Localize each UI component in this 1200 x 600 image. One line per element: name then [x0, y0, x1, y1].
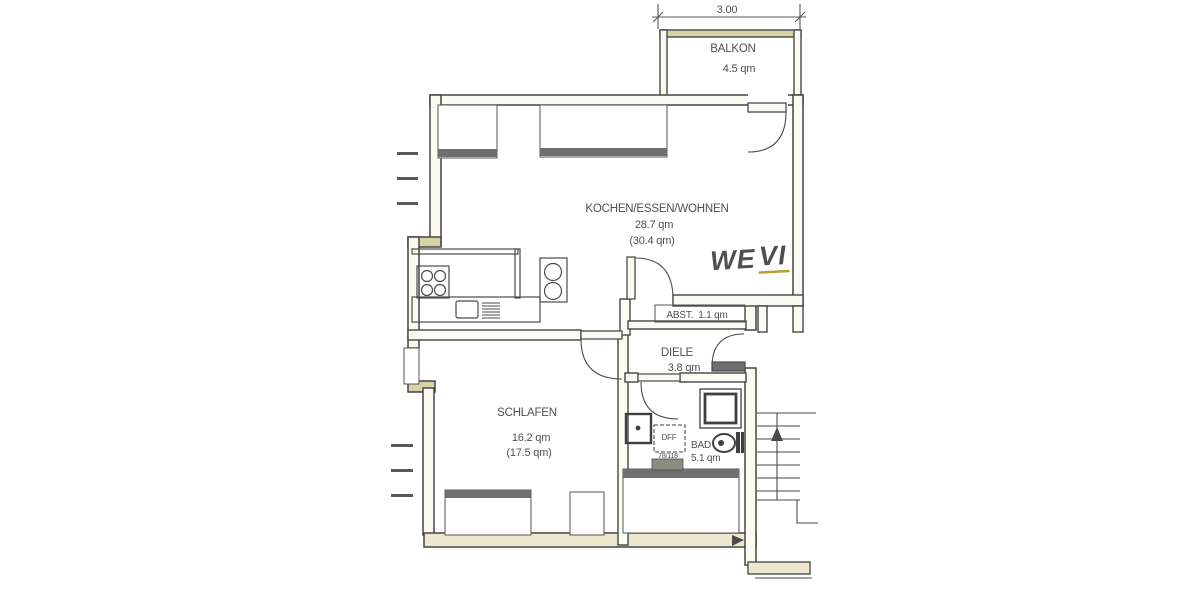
- window-south-small: [570, 492, 604, 535]
- bath-fixtures: [626, 389, 744, 470]
- staircase: [748, 413, 818, 578]
- shower-symbol: [700, 389, 741, 428]
- room-label-schlafen: SCHLAFEN 16.2 qm (17.5 qm): [497, 407, 557, 459]
- unit-annotation: WE VI: [709, 240, 789, 276]
- svg-text:SCHLAFEN: SCHLAFEN: [497, 407, 557, 419]
- window-sill: [438, 149, 497, 157]
- svg-text:28.7 qm: 28.7 qm: [635, 219, 673, 231]
- sink-symbol: [456, 301, 478, 318]
- svg-text:78/118: 78/118: [658, 453, 678, 460]
- dimension-label: 3.00: [717, 4, 738, 16]
- svg-text:3.8 qm: 3.8 qm: [668, 362, 700, 374]
- svg-text:(30.4 qm): (30.4 qm): [629, 235, 674, 247]
- svg-text:BAD: BAD: [691, 440, 711, 451]
- window-west-schlafen: [404, 348, 419, 384]
- stove-symbol: [417, 266, 449, 298]
- room-label-diele: DIELE 3.8 qm: [661, 347, 700, 374]
- svg-text:5.1 qm: 5.1 qm: [691, 453, 720, 464]
- schlafen-door: [581, 331, 622, 379]
- room-label-balkon: BALKON: [710, 43, 755, 55]
- skylight-label: DFF 78/118: [658, 433, 678, 460]
- svg-text:(17.5 qm): (17.5 qm): [506, 447, 551, 459]
- kitchen-divider: [515, 249, 520, 298]
- window-sill: [445, 490, 531, 498]
- kitchen-fixtures: [412, 249, 567, 322]
- hob-unit-symbol: [540, 258, 567, 302]
- entry-door: [712, 334, 745, 371]
- svg-text:KOCHEN/ESSEN/WOHNEN: KOCHEN/ESSEN/WOHNEN: [585, 203, 728, 215]
- balcony-door: [748, 93, 788, 152]
- floor-plan-page: 3.00 BALKON 4.5 qm: [0, 0, 1200, 600]
- window-sill: [540, 148, 667, 156]
- bad-door: [638, 374, 680, 419]
- svg-text:VI: VI: [758, 240, 787, 271]
- room-label-bad: BAD 5.1 qm: [691, 440, 720, 464]
- svg-text:DIELE: DIELE: [661, 347, 694, 359]
- window-south-bad: [623, 469, 739, 533]
- room-label-abst: ABST.1.1 qm: [666, 310, 727, 321]
- stair-direction-arrow-icon: [771, 427, 783, 441]
- svg-text:DFF: DFF: [662, 433, 677, 442]
- drainer-symbol: [482, 303, 500, 318]
- radiator-symbol: [652, 459, 683, 470]
- svg-text:WE: WE: [709, 244, 756, 276]
- floor-plan-drawing: 3.00 BALKON 4.5 qm: [0, 0, 1200, 600]
- room-label-wohnen: KOCHEN/ESSEN/WOHNEN 28.7 qm (30.4 qm): [585, 203, 728, 247]
- living-hall-door: [627, 257, 673, 299]
- room-area-balkon: 4.5 qm: [723, 63, 755, 75]
- svg-text:16.2 qm: 16.2 qm: [512, 432, 550, 444]
- washbasin-symbol: [626, 414, 651, 443]
- counter-line: [412, 249, 518, 254]
- toilet-symbol: [713, 432, 744, 453]
